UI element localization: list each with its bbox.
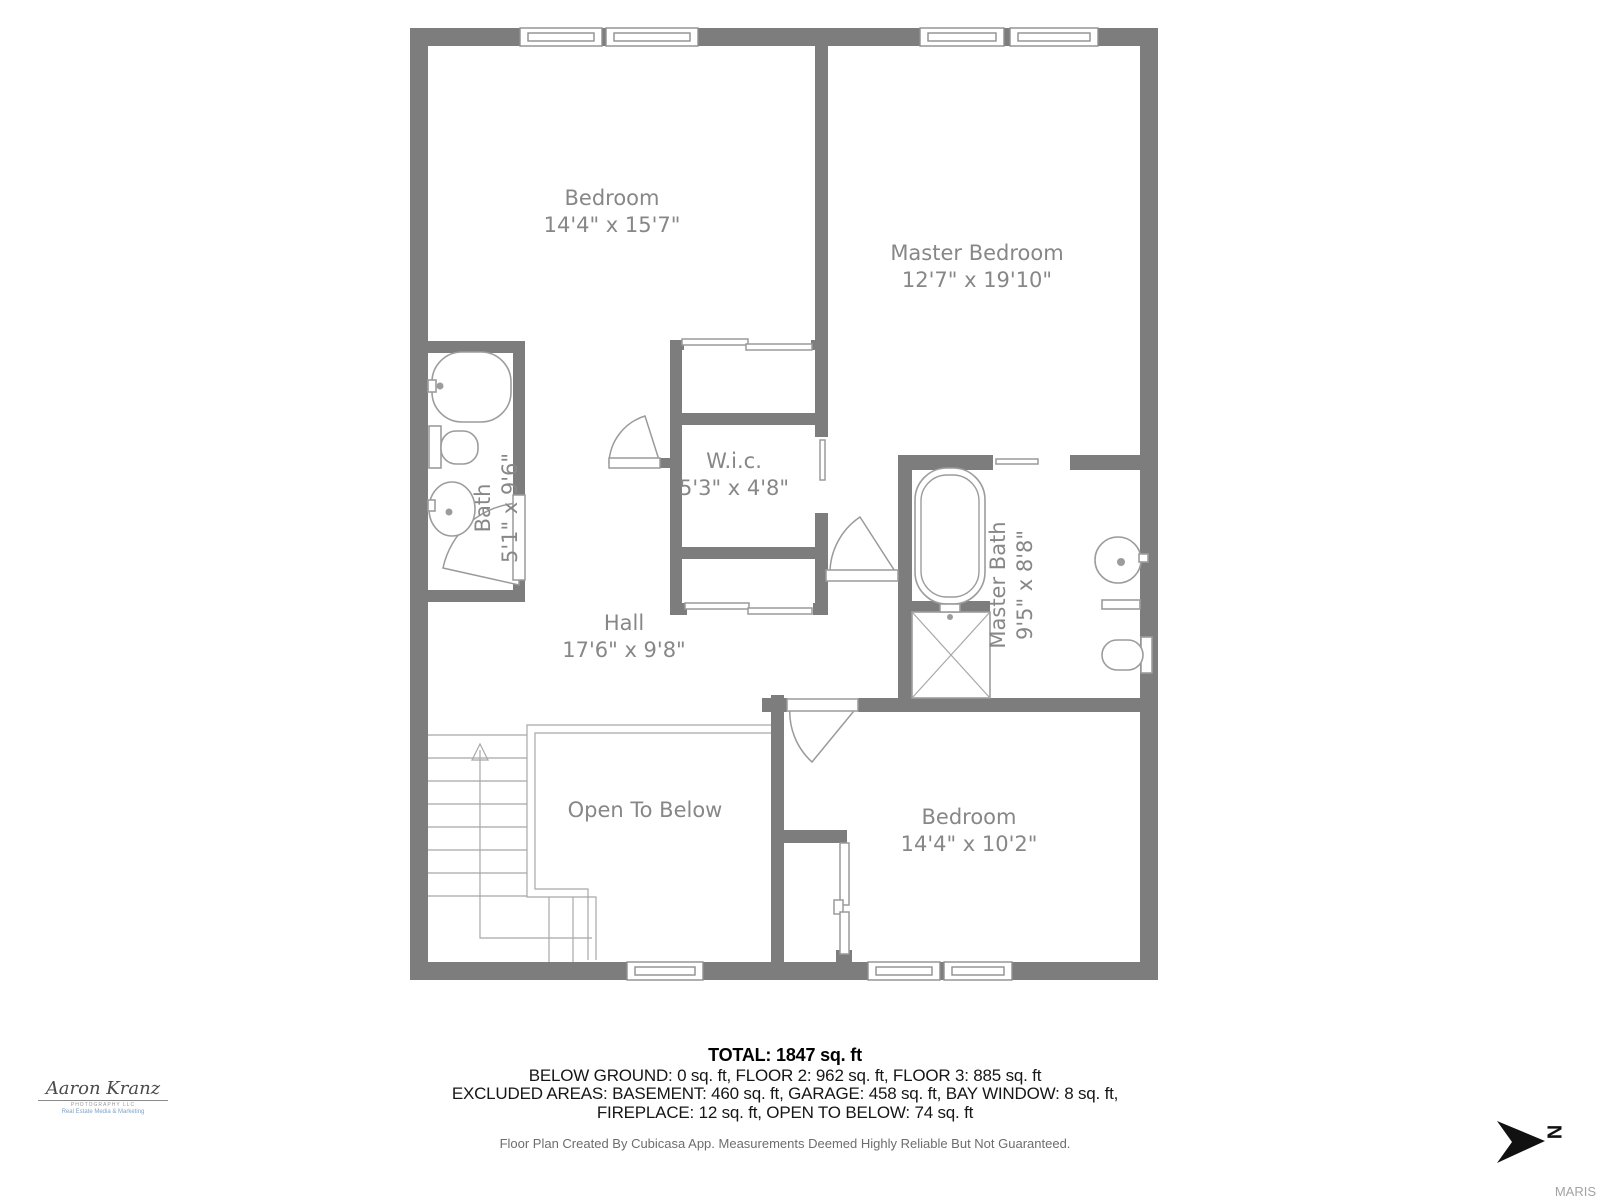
- sink: [429, 482, 475, 536]
- disclaimer: Floor Plan Created By Cubicasa App. Meas…: [0, 1136, 1570, 1151]
- room-name: Open To Below: [520, 797, 770, 824]
- room-name: Master Bath: [985, 475, 1012, 695]
- excluded-line-2: FIREPLACE: 12 sq. ft, OPEN TO BELOW: 74 …: [0, 1104, 1570, 1123]
- room-name: Hall: [524, 610, 724, 637]
- total-area: TOTAL: 1847 sq. ft: [0, 1046, 1570, 1065]
- room-label-bedroom-1: Bedroom 14'4" x 15'7": [512, 185, 712, 239]
- room-dims: 14'4" x 15'7": [512, 212, 712, 239]
- open-to-below-railing: [527, 725, 771, 960]
- room-dims: 12'7" x 19'10": [852, 267, 1102, 294]
- sink-tap: [428, 500, 435, 511]
- room-label-open-to-below: Open To Below: [520, 797, 770, 824]
- room-name: Bedroom: [844, 804, 1094, 831]
- room-dims: 14'4" x 10'2": [844, 831, 1094, 858]
- bathtub: [432, 352, 511, 422]
- counter: [1102, 600, 1140, 609]
- floor-plan-canvas: N: [0, 0, 1600, 1200]
- room-dims: 9'5" x 8'8": [1012, 475, 1039, 695]
- toilet-tank: [429, 426, 441, 468]
- stair-direction-arrow: [480, 750, 592, 938]
- room-label-master-bath: Master Bath 9'5" x 8'8": [985, 475, 1039, 695]
- mls-watermark: MARIS: [1555, 1184, 1596, 1199]
- area-summary: TOTAL: 1847 sq. ft BELOW GROUND: 0 sq. f…: [0, 1046, 1570, 1122]
- room-dims: 5'3" x 4'8": [634, 475, 834, 502]
- master-tub: [915, 468, 985, 604]
- floors-line: BELOW GROUND: 0 sq. ft, FLOOR 2: 962 sq.…: [0, 1067, 1570, 1086]
- master-toilet-bowl: [1102, 640, 1143, 670]
- floor-plan-page: N Bedroom 14'4" x 15'7" Master Bedroom 1…: [0, 0, 1600, 1200]
- master-sink-tap: [1139, 554, 1148, 562]
- room-label-hall: Hall 17'6" x 9'8": [524, 610, 724, 664]
- logo-tagline-1: PHOTOGRAPHY LLC: [38, 1102, 168, 1108]
- room-dims: 17'6" x 9'8": [524, 637, 724, 664]
- tub-faucet: [428, 380, 436, 392]
- room-name: W.i.c.: [634, 448, 834, 475]
- room-name: Bedroom: [512, 185, 712, 212]
- shower-valve: [940, 604, 960, 612]
- photographer-logo: Aaron Kranz PHOTOGRAPHY LLC Real Estate …: [38, 1078, 168, 1115]
- logo-name: Aaron Kranz: [38, 1078, 168, 1101]
- stairs: [428, 735, 592, 962]
- room-name: Master Bedroom: [852, 240, 1102, 267]
- room-label-master-bedroom: Master Bedroom 12'7" x 19'10": [852, 240, 1102, 294]
- room-name: Bath: [470, 428, 497, 588]
- excluded-line-1: EXCLUDED AREAS: BASEMENT: 460 sq. ft, GA…: [0, 1085, 1570, 1104]
- logo-tagline-2: Real Estate Media & Marketing: [38, 1109, 168, 1115]
- room-label-bedroom-2: Bedroom 14'4" x 10'2": [844, 804, 1094, 858]
- room-label-wic: W.i.c. 5'3" x 4'8": [634, 448, 834, 502]
- room-dims: 5'1" x 9'6": [497, 428, 524, 588]
- room-label-bath: Bath 5'1" x 9'6": [470, 428, 524, 588]
